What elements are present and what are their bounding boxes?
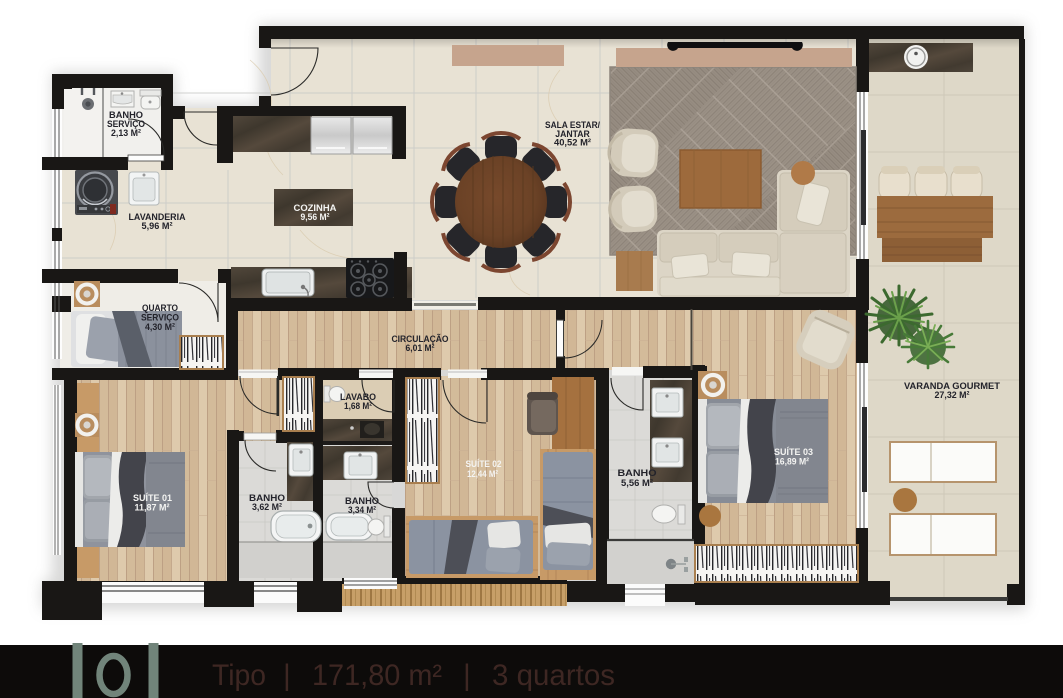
svg-text:3,62 M²: 3,62 M² bbox=[252, 501, 282, 512]
svg-text:12,44 M²: 12,44 M² bbox=[467, 468, 498, 479]
svg-text:9,56 M²: 9,56 M² bbox=[301, 211, 330, 222]
svg-text:5,96 M²: 5,96 M² bbox=[142, 220, 173, 231]
svg-text:6,01 M²: 6,01 M² bbox=[406, 342, 435, 353]
svg-text:40,52 M²: 40,52 M² bbox=[554, 137, 591, 148]
svg-text:171,80 m²: 171,80 m² bbox=[312, 659, 442, 692]
svg-text:27,32 M²: 27,32 M² bbox=[935, 389, 970, 400]
svg-text:3 quartos: 3 quartos bbox=[492, 659, 615, 692]
svg-text:5,56 M²: 5,56 M² bbox=[621, 477, 653, 488]
svg-text:2,13 M²: 2,13 M² bbox=[111, 127, 141, 138]
svg-text:16,89 M²: 16,89 M² bbox=[775, 456, 809, 467]
svg-text:1,68 M²: 1,68 M² bbox=[344, 400, 372, 411]
svg-text:Tipo: Tipo bbox=[212, 659, 266, 692]
svg-text:|: | bbox=[463, 659, 471, 692]
svg-text:|: | bbox=[283, 659, 291, 692]
svg-text:11,87 M²: 11,87 M² bbox=[135, 502, 170, 513]
svg-text:3,34 M²: 3,34 M² bbox=[348, 504, 376, 515]
svg-text:4,30 M²: 4,30 M² bbox=[145, 321, 175, 332]
